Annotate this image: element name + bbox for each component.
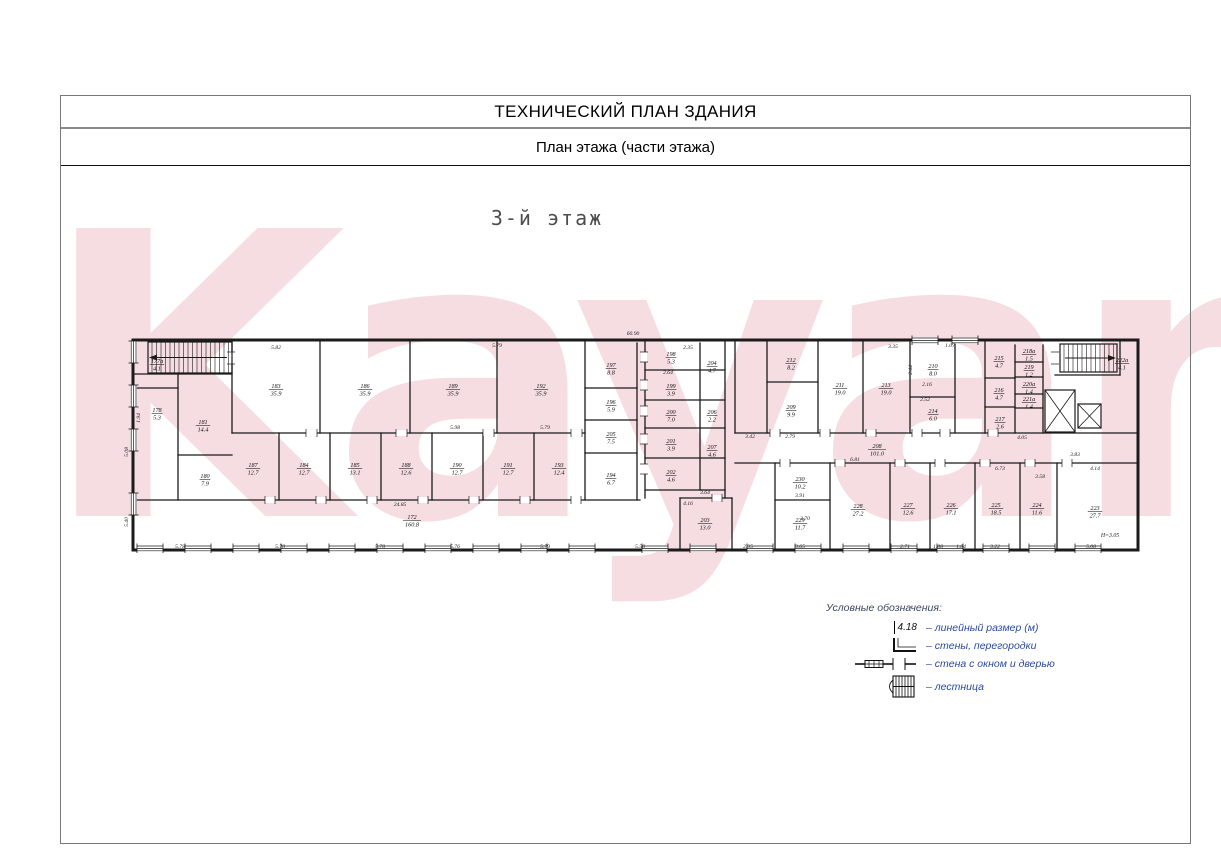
room-area: 8.2: [787, 364, 795, 371]
room-area: 4.1: [153, 365, 161, 372]
room-area: 4.1: [1118, 364, 1126, 371]
door-opening: [895, 460, 905, 466]
dimension-label: 6.73: [995, 466, 1005, 472]
dimension-label: 5.58: [635, 544, 645, 550]
dimension-label: 3.91: [794, 493, 805, 499]
dimension-label: 2.64: [663, 370, 673, 376]
room-area: 19.0: [881, 389, 893, 396]
dimension-label: 5.40: [124, 517, 130, 527]
room-number: 200: [666, 409, 676, 416]
room-number: 181: [198, 419, 207, 426]
room-area: 2.6: [996, 423, 1005, 430]
walls-icon: [826, 637, 926, 654]
door-opening: [980, 460, 990, 466]
door-opening: [641, 352, 647, 362]
dimension-label: 3.70: [799, 516, 810, 522]
room-area: 27.2: [853, 510, 864, 517]
floor-plan-svg: 177а4.118335.918635.918935.919235.91785.…: [0, 0, 1221, 867]
room-number: 184: [299, 462, 308, 469]
door-opening: [835, 460, 845, 466]
dimension-label: 5.79: [492, 343, 502, 349]
room-number: 207: [707, 444, 717, 451]
dimension-label: 4.16: [683, 501, 693, 507]
room-area: 4.6: [667, 476, 676, 483]
door-opening: [988, 430, 998, 436]
door-opening: [940, 430, 950, 436]
legend-item-label: – линейный размер (м): [926, 622, 1038, 634]
door-opening: [1025, 460, 1035, 466]
room-area: 160.8: [405, 521, 420, 528]
dimension-label: 6.81: [850, 457, 860, 463]
room-number: 194: [606, 472, 615, 479]
room-number: 189: [448, 383, 457, 390]
door-opening: [912, 430, 922, 436]
dimension-label: 5.76: [450, 544, 460, 550]
room-area: 9.9: [787, 411, 795, 418]
door-opening: [418, 497, 428, 503]
room-number: 208: [872, 443, 882, 450]
dimension-label: 5.82: [271, 345, 281, 351]
linear-dimension-icon: 4.18: [826, 621, 926, 634]
room-number: 202: [666, 469, 675, 476]
room-number: 185: [350, 462, 359, 469]
room-number: 213: [881, 382, 890, 389]
room-number: 178: [152, 407, 162, 414]
walls-symbol-svg: [891, 637, 917, 654]
height-note: Н=3.05: [1100, 533, 1119, 539]
dimension-label: 2.44: [908, 365, 914, 375]
room-number: 193: [554, 462, 563, 469]
dimension-label: 3.65: [794, 544, 805, 550]
door-opening: [396, 430, 407, 436]
room-area: 35.9: [535, 390, 547, 397]
room-area: 13.1: [350, 469, 361, 476]
room-area: 4.7: [995, 362, 1004, 369]
room-area: 18.5: [991, 509, 1002, 516]
room-number: 180: [200, 473, 210, 480]
dimension-label: 3.22: [989, 544, 1000, 550]
dimension-label: 2.35: [743, 544, 753, 550]
dimension-label: 3.64: [699, 490, 710, 496]
room-area: 5.3: [667, 358, 675, 365]
room-number: 172: [407, 514, 416, 521]
room-area: 101.0: [870, 450, 885, 457]
room-number: 221а: [1023, 396, 1035, 403]
dimension-label: 3.58: [1034, 474, 1045, 480]
room-area: 12.7: [452, 469, 464, 476]
room-number: 187: [248, 462, 258, 469]
room-number: 205: [606, 431, 615, 438]
door-opening: [866, 430, 876, 436]
room-number: 190: [452, 462, 462, 469]
door-opening: [571, 497, 581, 503]
door-opening: [641, 380, 647, 390]
dimension-label: 1.88: [933, 544, 943, 550]
legend-item-label: – стены, перегородки: [926, 640, 1036, 652]
room-number: 225: [991, 502, 1000, 509]
door-opening: [483, 430, 494, 436]
legend: Условные обозначения: 4.18 – линейный ра…: [826, 602, 1176, 703]
room-number: 218а: [1023, 348, 1035, 355]
room-number: 215: [994, 355, 1003, 362]
legend-dim-value: 4.18: [894, 621, 917, 634]
room-number: 183: [271, 383, 280, 390]
door-opening: [935, 460, 945, 466]
stair-arrowhead: [1108, 355, 1116, 361]
door-opening: [306, 430, 317, 436]
technical-plan-page: Kayan ТЕХНИЧЕСКИЙ ПЛАН ЗДАНИЯ План этажа…: [0, 0, 1221, 867]
dimension-label: 60.90: [627, 331, 640, 337]
door-opening: [641, 464, 647, 474]
room-area: 1.2: [1025, 371, 1033, 378]
room-number: 209: [786, 404, 795, 411]
room-number: 199: [666, 383, 675, 390]
room-number: 222а: [1116, 357, 1128, 364]
door-opening: [316, 497, 326, 503]
room-area: 3.9: [666, 445, 675, 452]
door-opening: [571, 430, 582, 436]
room-number: 214: [928, 408, 937, 415]
room-area: 19.0: [835, 389, 847, 396]
dimension-label: 5.79: [540, 425, 550, 431]
room-area: 13.0: [700, 524, 712, 531]
room-number: 220а: [1023, 381, 1035, 388]
door-opening: [641, 406, 647, 416]
door-opening: [1052, 352, 1058, 364]
legend-item-stairs: – лестница: [826, 674, 1176, 700]
room-area: 27.7: [1090, 512, 1102, 519]
legend-item-walls: – стены, перегородки: [826, 637, 1176, 654]
room-area: 7.9: [201, 480, 209, 487]
room-area: 3.9: [666, 390, 675, 397]
room-area: 7.0: [667, 416, 676, 423]
room-number: 211: [836, 382, 845, 389]
room-number: 196: [606, 399, 616, 406]
door-opening: [770, 430, 780, 436]
room-number: 188: [401, 462, 411, 469]
room-area: 1.4: [1025, 388, 1033, 395]
room-number: 203: [700, 517, 709, 524]
room-number: 228: [853, 503, 863, 510]
room-area: 5.9: [607, 406, 615, 413]
room-number: 192: [536, 383, 545, 390]
room-area: 5.3: [153, 414, 161, 421]
room-area: 6.0: [929, 415, 938, 422]
dimension-label: 2.16: [922, 382, 932, 388]
room-area: 12.4: [554, 469, 565, 476]
stairs-symbol-svg: [885, 674, 917, 700]
room-area: 12.7: [299, 469, 311, 476]
room-number: 223: [1090, 505, 1099, 512]
room-area: 11.7: [795, 524, 806, 531]
room-area: 12.7: [503, 469, 515, 476]
legend-item-label: – лестница: [926, 681, 984, 693]
room-number: 177а: [151, 358, 163, 365]
room-number: 204: [707, 360, 716, 367]
room-area: 35.9: [447, 390, 459, 397]
room-area: 7.5: [607, 438, 615, 445]
room-area: 12.6: [903, 509, 915, 516]
door-opening: [228, 352, 234, 364]
window-door-symbol-svg: [855, 657, 917, 671]
window-door-icon: [826, 657, 926, 671]
room-area: 2.2: [708, 416, 716, 423]
dimension-label: 5.98: [450, 425, 460, 431]
room-area: 17.1: [946, 509, 957, 516]
room-number: 219: [1024, 364, 1033, 371]
room-number: 201: [666, 438, 675, 445]
room-area: 1.4: [1025, 403, 1033, 410]
legend-item-dimension: 4.18 – линейный размер (м): [826, 621, 1176, 634]
room-area: 12.6: [401, 469, 413, 476]
door-opening: [641, 434, 647, 444]
room-number: 227: [903, 502, 913, 509]
door-opening: [820, 430, 830, 436]
dimension-label: 5.79: [540, 544, 550, 550]
dimension-label: 2.35: [683, 345, 693, 351]
door-opening: [712, 495, 722, 501]
room-area: 4.7: [708, 367, 717, 374]
room-area: 10.2: [795, 483, 806, 490]
room-number: 217: [995, 416, 1005, 423]
door-opening: [1062, 460, 1072, 466]
room-number: 197: [606, 362, 616, 369]
room-number: 191: [503, 462, 512, 469]
room-number: 224: [1032, 502, 1041, 509]
room-area: 14.4: [198, 426, 209, 433]
legend-item-label: – стена с окном и дверью: [926, 658, 1055, 670]
room-area: 11.6: [1032, 509, 1043, 516]
dimension-label: 2.79: [785, 434, 795, 440]
room-area: 35.9: [359, 390, 371, 397]
dimension-label: 5.78: [375, 544, 385, 550]
room-number: 210: [928, 363, 938, 370]
room-area: 1.5: [1025, 355, 1033, 362]
room-area: 4.7: [995, 394, 1004, 401]
dimension-label: 1.07: [945, 343, 955, 349]
dimension-label: 2.71: [900, 544, 910, 550]
dimension-label: 3.42: [744, 434, 755, 440]
room-area: 8.0: [929, 370, 938, 377]
door-opening: [265, 497, 275, 503]
dimension-label: 1.84: [956, 544, 966, 550]
door-opening: [469, 497, 479, 503]
room-number: 212: [786, 357, 795, 364]
room-number: 216: [994, 387, 1004, 394]
dimension-label: 5.08: [124, 447, 130, 457]
dimension-label: 1.94: [136, 413, 142, 423]
dimension-label: 4.05: [1017, 435, 1027, 441]
room-number: 198: [666, 351, 676, 358]
room-area: 8.8: [607, 369, 616, 376]
legend-title: Условные обозначения:: [826, 602, 1176, 614]
room-area: 12.7: [248, 469, 260, 476]
dimension-label: 3.83: [1069, 452, 1080, 458]
dimension-label: 5.78: [275, 544, 285, 550]
room-area: 6.7: [607, 479, 616, 486]
room-number: 206: [707, 409, 717, 416]
dimension-label: 5.78: [175, 544, 185, 550]
legend-item-window-door: – стена с окном и дверью: [826, 657, 1176, 671]
dimension-label: 24.85: [394, 502, 407, 508]
room-number: 226: [946, 502, 956, 509]
room-area: 4.6: [708, 451, 717, 458]
dimension-label: 3.35: [887, 344, 898, 350]
door-opening: [367, 497, 377, 503]
door-opening: [780, 460, 790, 466]
stairs-icon: [826, 674, 926, 700]
door-opening: [520, 497, 530, 503]
dimension-label: 5.08: [1086, 544, 1096, 550]
dimension-label: 2.52: [920, 397, 930, 403]
room-area: 35.9: [270, 390, 282, 397]
room-number: 186: [360, 383, 370, 390]
dimension-label: 4.14: [1090, 466, 1100, 472]
room-number: 230: [795, 476, 805, 483]
